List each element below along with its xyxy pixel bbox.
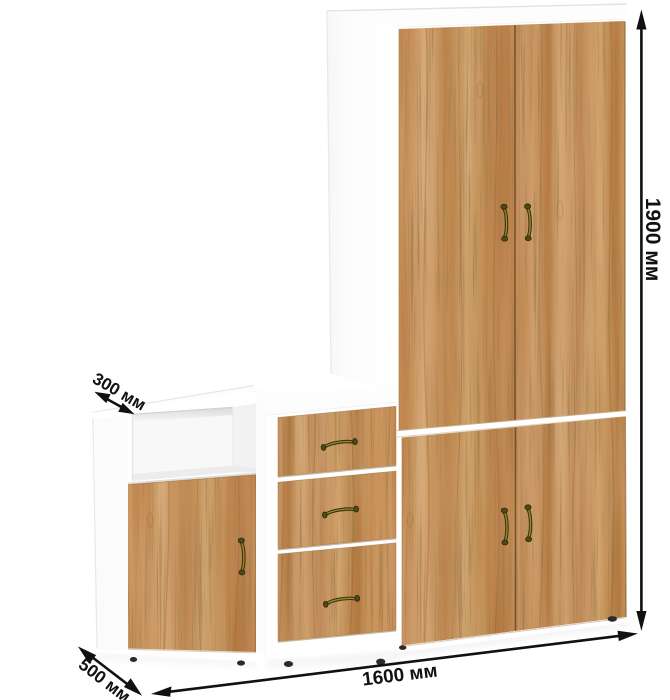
svg-text:1900 мм: 1900 мм — [641, 198, 664, 282]
